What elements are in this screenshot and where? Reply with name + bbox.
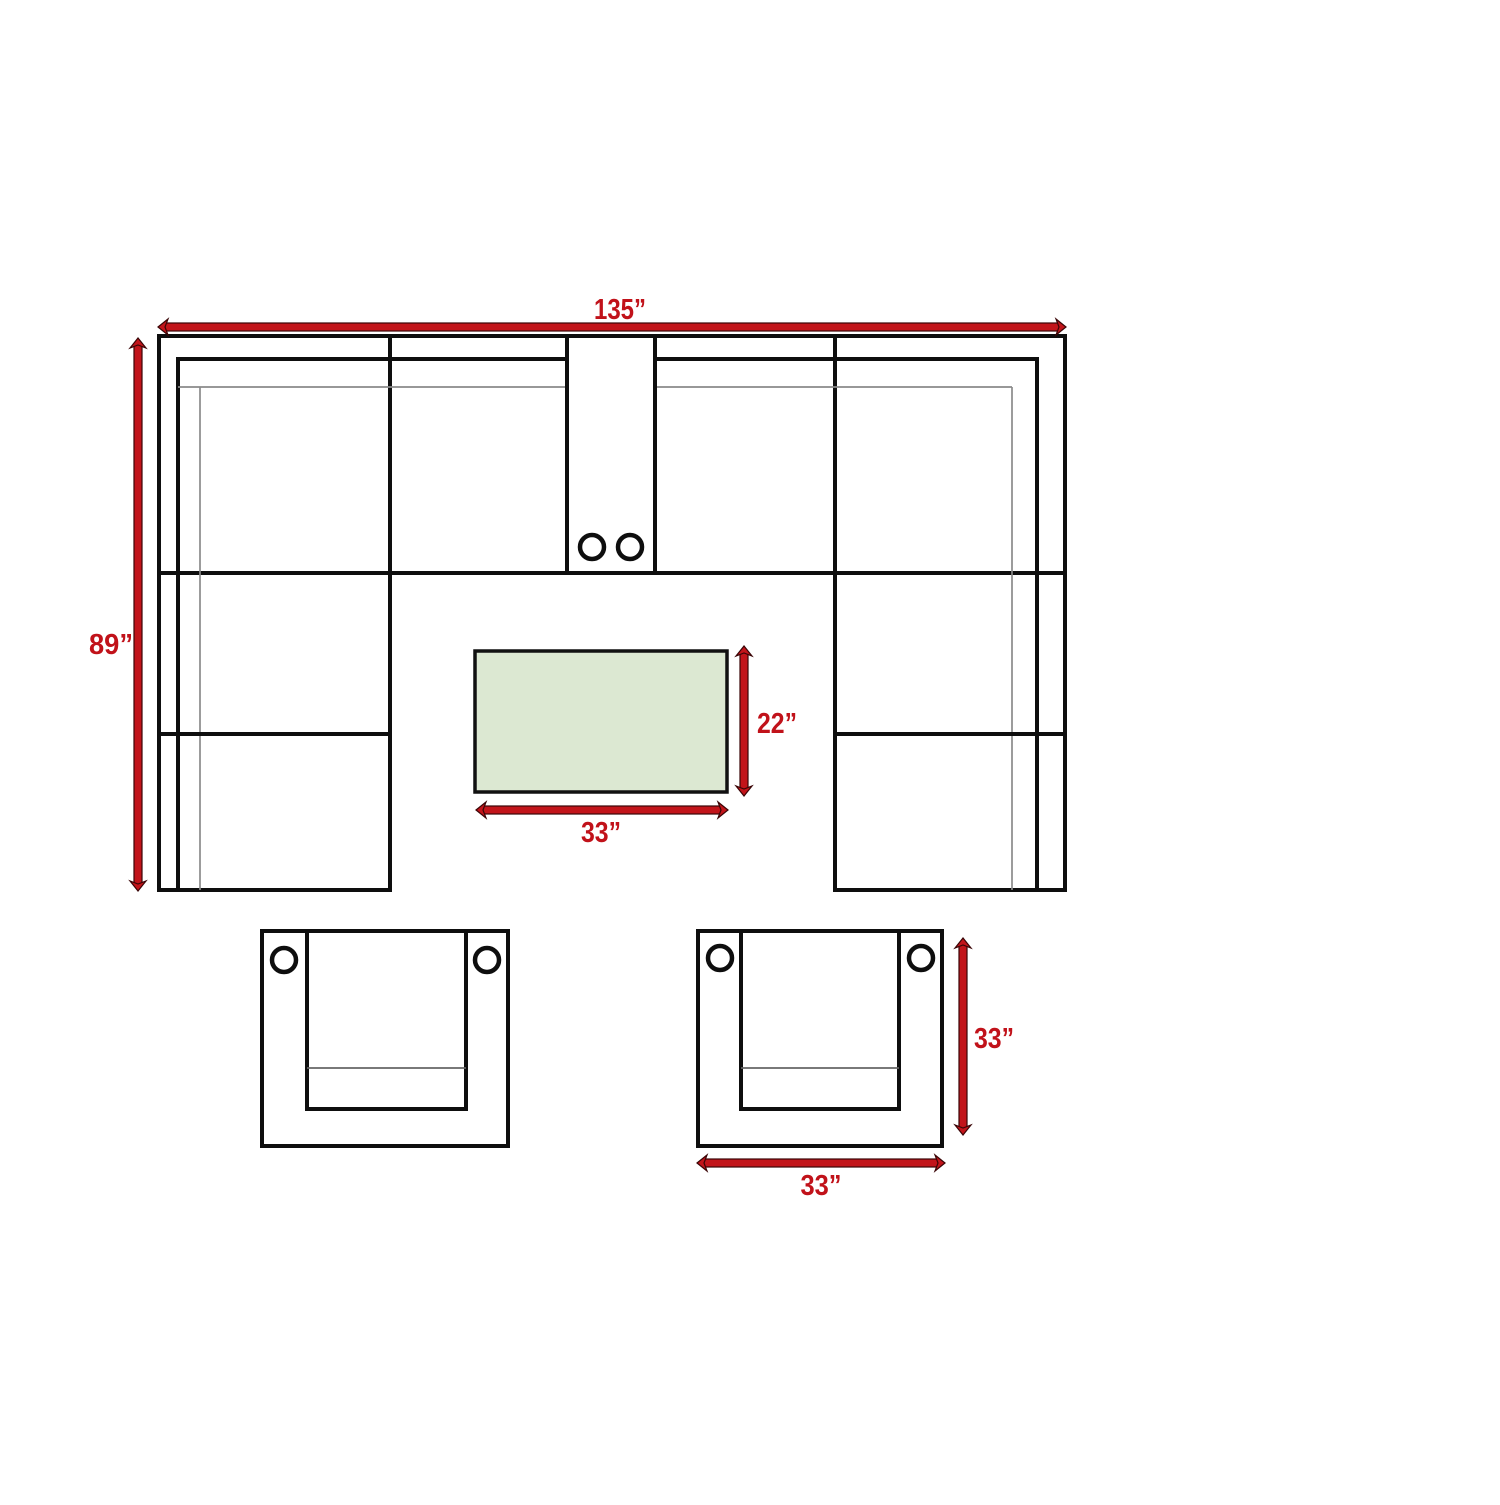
svg-text:33”: 33” (974, 1023, 1014, 1055)
svg-text:22”: 22” (757, 708, 797, 740)
svg-text:89”: 89” (89, 629, 133, 661)
svg-text:135”: 135” (594, 294, 646, 326)
svg-text:33”: 33” (581, 817, 621, 849)
svg-text:33”: 33” (801, 1170, 842, 1202)
